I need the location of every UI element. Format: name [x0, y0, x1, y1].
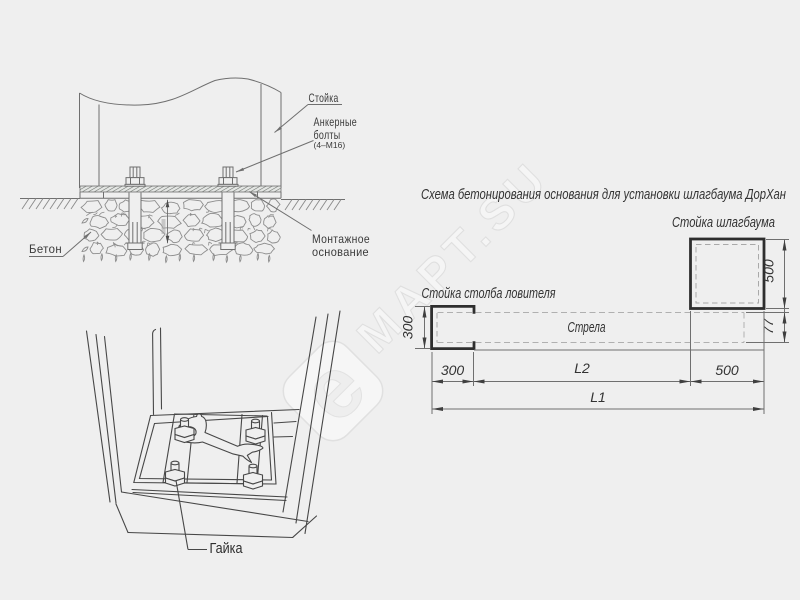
- svg-text:Анкерные: Анкерные: [314, 115, 358, 129]
- svg-text:Гайка: Гайка: [210, 541, 244, 557]
- svg-text:(4–М16): (4–М16): [314, 140, 346, 150]
- svg-text:Стойка шлагбаума: Стойка шлагбаума: [672, 215, 775, 231]
- svg-text:L2: L2: [574, 360, 590, 376]
- svg-text:500: 500: [761, 259, 777, 283]
- svg-text:500: 500: [715, 362, 739, 378]
- svg-text:МАРТ.SU: МАРТ.SU: [346, 150, 559, 363]
- svg-text:основание: основание: [312, 245, 369, 259]
- svg-text:300: 300: [441, 362, 465, 378]
- svg-text:300: 300: [400, 316, 416, 340]
- svg-text:Монтажное: Монтажное: [312, 232, 370, 246]
- svg-text:Стойка столба ловителя: Стойка столба ловителя: [422, 286, 556, 302]
- svg-text:L1: L1: [590, 389, 606, 405]
- svg-text:Схема бетонирования основания: Схема бетонирования основания для устано…: [421, 187, 786, 203]
- svg-text:Стрела: Стрела: [568, 320, 606, 336]
- svg-text:77: 77: [760, 318, 776, 335]
- svg-text:Стойка: Стойка: [309, 91, 339, 105]
- svg-text:Бетон: Бетон: [29, 242, 62, 256]
